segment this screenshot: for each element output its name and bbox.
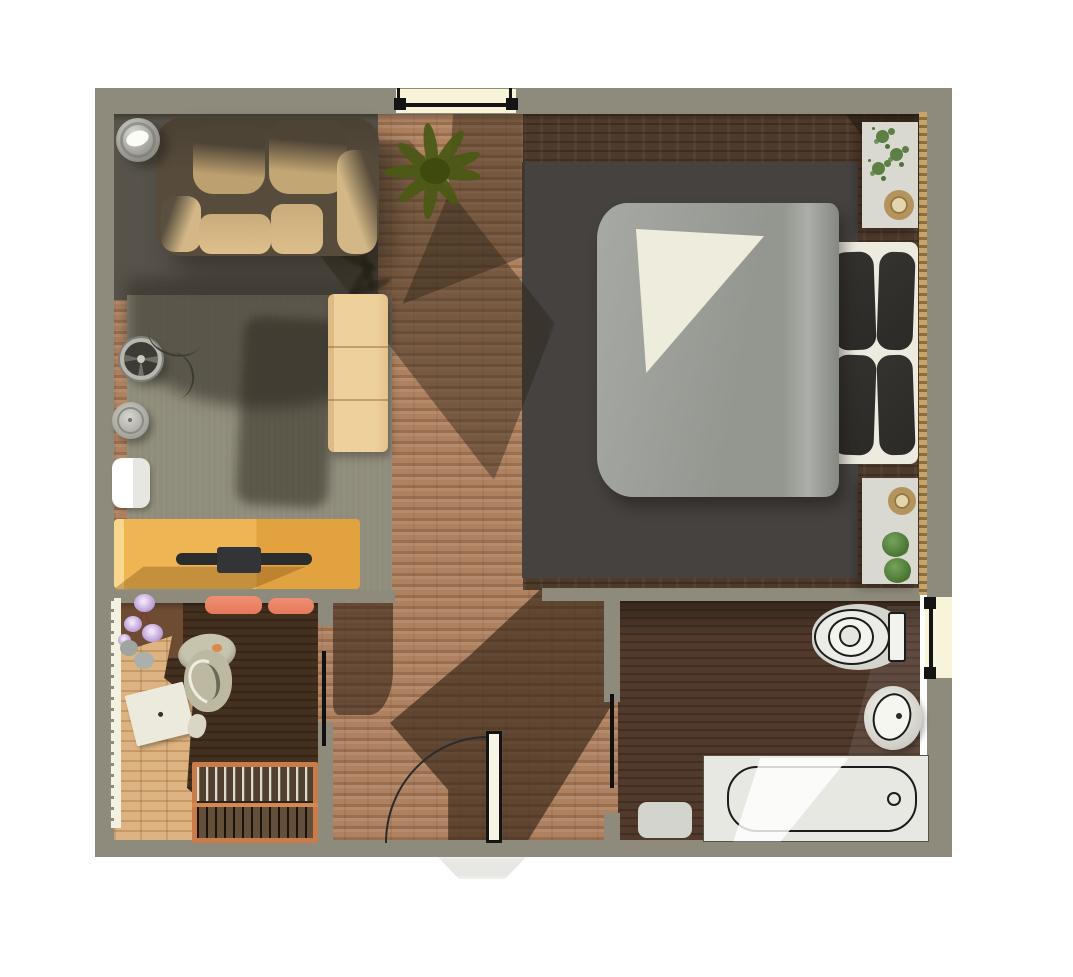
nightstand-plant [876, 130, 889, 143]
toilet-inner [839, 625, 861, 647]
sofa[interactable] [157, 118, 379, 256]
chair-orange-detail [212, 644, 222, 652]
door-swing-arc [385, 736, 488, 843]
speaker[interactable] [112, 402, 149, 439]
wall-bathroom-divider-upper [604, 588, 620, 702]
hallway-shadow-left [333, 603, 393, 715]
orange-cushion [268, 598, 314, 614]
nightstand-bush [882, 532, 909, 557]
flower-blossom [124, 616, 142, 632]
bathtub[interactable] [703, 755, 929, 842]
entrance-door[interactable] [385, 731, 502, 843]
basin-drain [896, 713, 902, 719]
window-glass [396, 89, 516, 113]
crib-slats-top [197, 767, 313, 801]
toilet-tank [888, 612, 906, 662]
sofa-back-cushion [193, 124, 265, 194]
sheet [636, 229, 764, 373]
sofa-seat-cushion [199, 214, 271, 254]
window-frame-bar [398, 103, 514, 107]
wall-bathroom-divider-lower [604, 813, 620, 840]
window-frame-square-right [506, 98, 518, 110]
potted-plant[interactable] [386, 120, 482, 220]
pillow [876, 354, 915, 455]
window-frame-bar [929, 601, 933, 674]
nightstand-plant [872, 162, 885, 175]
duvet [597, 203, 839, 497]
floor-lamp[interactable] [116, 118, 160, 162]
tub-drain [887, 792, 901, 806]
gold-curtain-trim [919, 112, 927, 595]
wall-top [95, 88, 952, 114]
double-bed[interactable] [597, 200, 919, 500]
washbasin[interactable] [864, 686, 922, 750]
wall-right [927, 88, 952, 857]
paper-dot [158, 711, 164, 717]
window-frame-square-left [394, 98, 406, 110]
office-chair[interactable] [176, 630, 240, 740]
gray-pebble [120, 640, 138, 656]
monitor [217, 547, 261, 573]
small-bench[interactable] [112, 458, 150, 508]
sofa-armrest [337, 150, 377, 254]
nursery-door-leaf[interactable] [322, 651, 326, 746]
orange-cushion [205, 596, 262, 614]
sideboard-seam [328, 399, 388, 401]
sideboard[interactable] [328, 294, 388, 452]
pillow [876, 251, 915, 350]
sofa-armrest [161, 196, 201, 252]
sofa-seat-cushion [271, 204, 323, 254]
flower-blossom [134, 594, 155, 612]
duvet-fold [783, 203, 839, 497]
wall-bathroom-top [542, 588, 920, 601]
flower-blossom [142, 624, 163, 642]
door-leaf [486, 731, 502, 843]
speaker-dot [128, 418, 132, 422]
fan-hub [137, 355, 145, 363]
entrance-threshold-shadow [436, 857, 528, 879]
window-frame-tick-right [509, 88, 512, 100]
crib-slats-bottom [197, 807, 313, 838]
window-frame-tick-left [397, 88, 400, 100]
sideboard-seam [328, 346, 388, 348]
desk[interactable] [114, 519, 360, 589]
heater-dashes [111, 598, 114, 828]
sofa-back-cushion [269, 120, 347, 194]
window-frame-square-bottom [924, 667, 936, 679]
chair-base [186, 712, 209, 739]
toilet[interactable] [812, 604, 906, 670]
bathroom-door-leaf[interactable] [610, 694, 614, 788]
cabinet-shadow [235, 316, 337, 509]
floor-plan-render [0, 0, 1073, 977]
baby-crib[interactable] [192, 762, 318, 843]
gray-pebble [134, 652, 154, 669]
top-window[interactable] [396, 89, 516, 114]
nightstand-bush [884, 558, 911, 583]
wall-nursery-divider-upper [318, 590, 333, 626]
bench-cushions[interactable] [205, 596, 315, 616]
window-frame-square-top [924, 597, 936, 609]
nightstand-plant [890, 148, 903, 161]
bath-mat[interactable] [638, 802, 692, 838]
plant-center [420, 158, 450, 184]
right-window[interactable] [925, 597, 952, 678]
